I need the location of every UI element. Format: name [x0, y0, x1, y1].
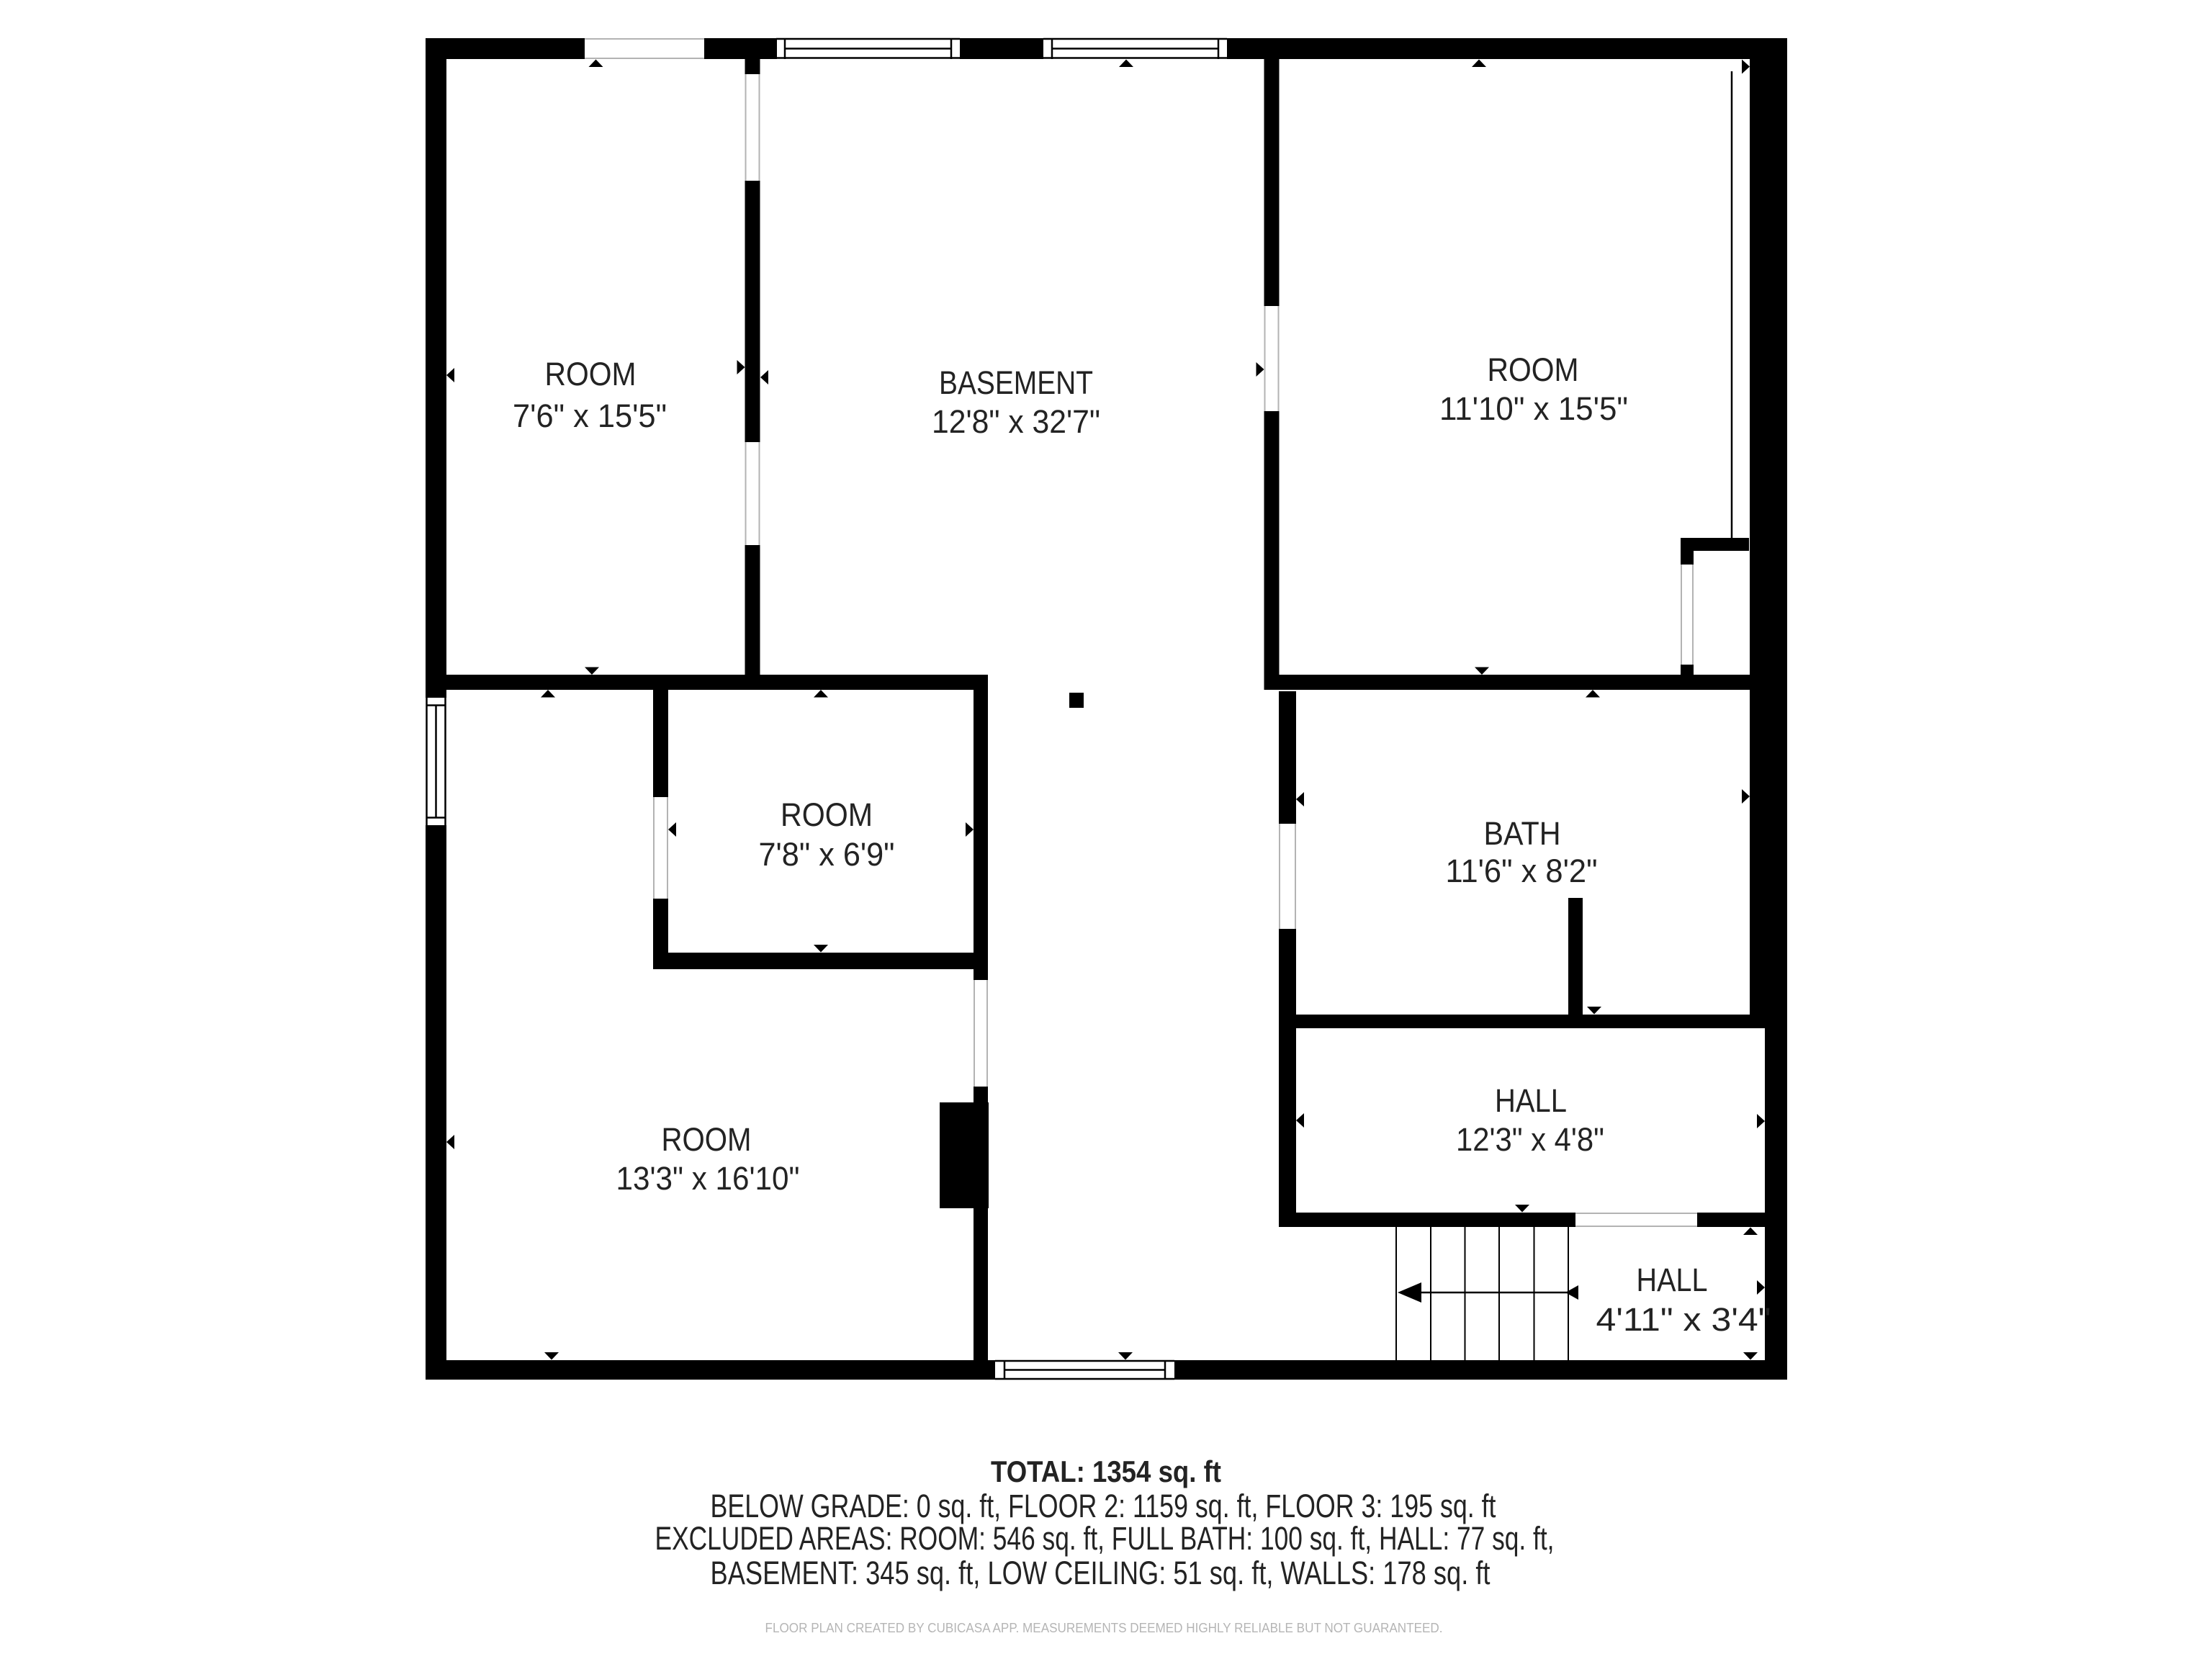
svg-text:FLOOR PLAN CREATED BY CUBICASA: FLOOR PLAN CREATED BY CUBICASA APP. MEAS…: [765, 1621, 1443, 1635]
svg-text:BATH: BATH: [1484, 815, 1561, 852]
svg-text:BELOW GRADE: 0 sq. ft, FLOOR 2: BELOW GRADE: 0 sq. ft, FLOOR 2: 1159 sq.…: [711, 1488, 1496, 1524]
svg-text:7'6" x 15'5": 7'6" x 15'5": [513, 397, 667, 434]
svg-text:11'6" x 8'2": 11'6" x 8'2": [1446, 853, 1598, 889]
svg-text:ROOM: ROOM: [781, 796, 873, 833]
svg-text:HALL: HALL: [1495, 1082, 1567, 1119]
svg-text:TOTAL: 1354 sq. ft: TOTAL: 1354 sq. ft: [991, 1455, 1221, 1488]
svg-text:BASEMENT: BASEMENT: [939, 364, 1093, 401]
svg-text:BASEMENT: 345 sq. ft, LOW CEIL: BASEMENT: 345 sq. ft, LOW CEILING: 51 sq…: [711, 1555, 1491, 1591]
svg-text:12'3" x 4'8": 12'3" x 4'8": [1456, 1121, 1604, 1158]
svg-text:12'8" x 32'7": 12'8" x 32'7": [932, 403, 1100, 440]
svg-text:13'3" x 16'10": 13'3" x 16'10": [616, 1160, 800, 1197]
svg-text:11'10" x 15'5": 11'10" x 15'5": [1439, 390, 1628, 427]
svg-text:ROOM: ROOM: [545, 356, 637, 392]
svg-text:7'8" x 6'9": 7'8" x 6'9": [759, 836, 895, 873]
svg-text:4'11" x 3'4": 4'11" x 3'4": [1596, 1301, 1771, 1338]
svg-text:EXCLUDED AREAS: ROOM: 546 sq.: EXCLUDED AREAS: ROOM: 546 sq. ft, FULL B…: [655, 1520, 1555, 1557]
svg-text:ROOM: ROOM: [1488, 351, 1579, 388]
svg-text:HALL: HALL: [1637, 1262, 1708, 1298]
svg-text:ROOM: ROOM: [662, 1121, 752, 1158]
